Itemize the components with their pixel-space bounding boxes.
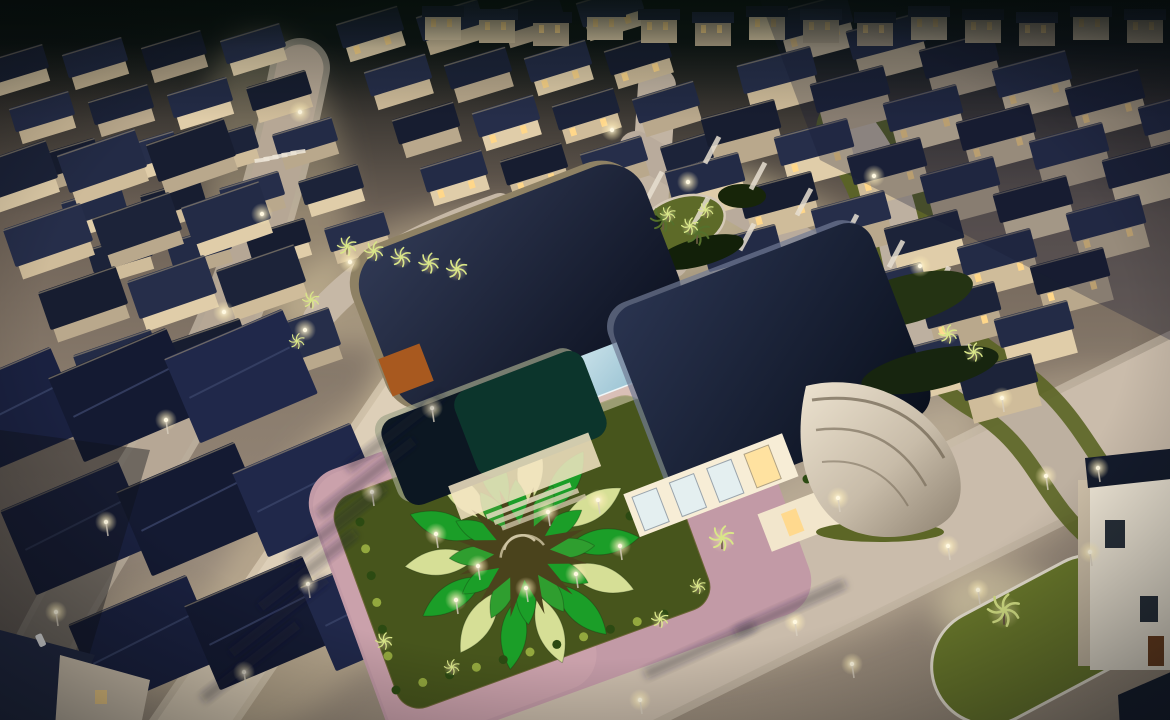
architectural-rendering <box>0 0 1170 720</box>
vignette <box>0 0 1170 720</box>
night-aerial-scene <box>0 0 1170 720</box>
